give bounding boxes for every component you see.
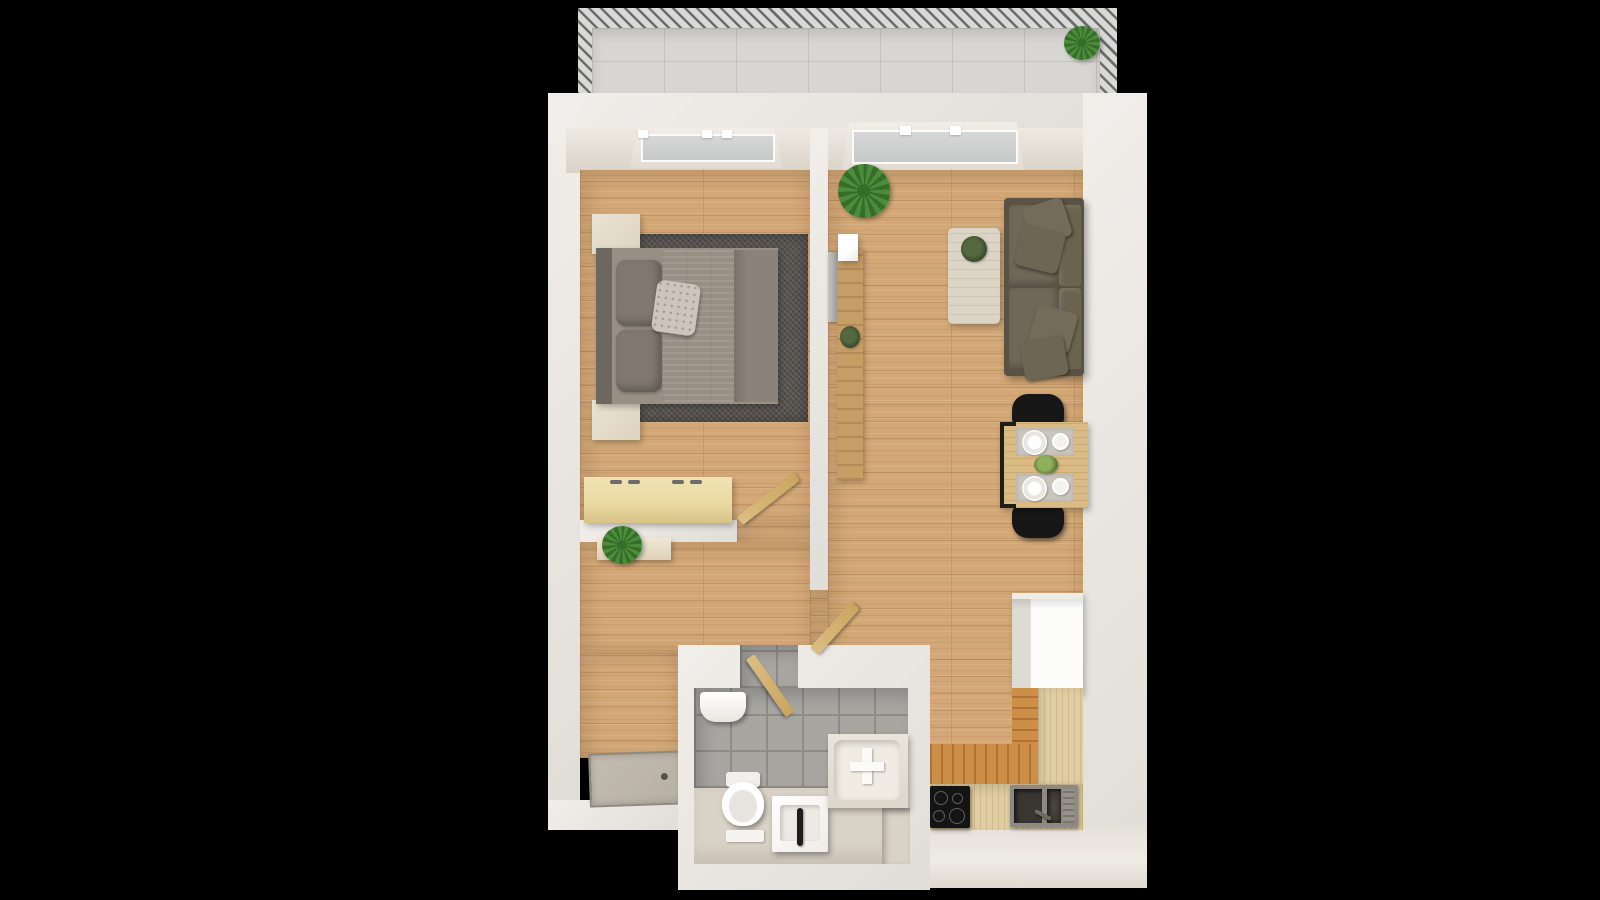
bedroom-window-mullion-3 bbox=[722, 130, 732, 138]
living-window-glass bbox=[852, 130, 1018, 164]
wall-left bbox=[548, 93, 580, 830]
living-plant-icon bbox=[838, 164, 890, 218]
dining-table-frame-top bbox=[1000, 422, 1016, 426]
hall-floor-lower bbox=[580, 650, 678, 758]
bedroom-window-mullion-2 bbox=[702, 130, 712, 138]
wall-right bbox=[1083, 93, 1147, 888]
toilet-bowl bbox=[722, 782, 764, 826]
washbasin-faucet bbox=[797, 808, 803, 846]
bathtub-faucet-horizontal bbox=[850, 762, 884, 771]
sofa-pillow-4 bbox=[1019, 334, 1069, 381]
fridge-cabinet bbox=[1012, 593, 1083, 694]
bathtub bbox=[828, 734, 908, 808]
bed-accent-pillow bbox=[651, 279, 702, 337]
water-heater bbox=[700, 692, 746, 722]
cooktop-burner-1 bbox=[934, 791, 948, 805]
console-plant-icon bbox=[840, 326, 860, 348]
dining-table-frame-bottom bbox=[1000, 504, 1016, 508]
dresser-handle-4 bbox=[690, 480, 702, 484]
cooktop-burner-4 bbox=[949, 808, 965, 824]
tv-panel bbox=[828, 252, 837, 322]
nightstand-bottom bbox=[592, 400, 640, 440]
coffee-table-plant-icon bbox=[961, 236, 987, 262]
bath-mat bbox=[726, 830, 764, 842]
bathroom-niche bbox=[882, 808, 910, 864]
bedroom-window bbox=[630, 128, 782, 168]
bedroom-door-threshold bbox=[737, 520, 810, 544]
bed-headboard bbox=[596, 248, 612, 404]
dining-table bbox=[1000, 422, 1088, 508]
kitchen-floor-strip-bottom bbox=[930, 744, 1038, 784]
dresser bbox=[584, 477, 732, 523]
balcony-floor bbox=[592, 28, 1100, 95]
floorplan-canvas bbox=[0, 0, 1600, 900]
washbasin bbox=[772, 796, 828, 852]
wall-bedroom-living bbox=[810, 128, 828, 590]
sofa bbox=[1004, 198, 1084, 376]
bed-pillow-2 bbox=[616, 330, 662, 392]
plate-top-large bbox=[1022, 430, 1047, 455]
dining-chair-bottom bbox=[1012, 504, 1064, 538]
plate-top-small bbox=[1052, 433, 1069, 450]
sink-drainboard bbox=[1063, 789, 1074, 823]
bedroom-window-mullion-1 bbox=[638, 130, 648, 138]
sink-bowl-left bbox=[1014, 789, 1042, 823]
cooktop-burner-2 bbox=[952, 793, 963, 804]
plate-bottom-small bbox=[1052, 478, 1069, 495]
living-window-mullion-2 bbox=[950, 126, 961, 135]
kitchen-counter-right bbox=[1038, 688, 1083, 786]
dresser-handle-3 bbox=[672, 480, 684, 484]
wall-panel-box bbox=[838, 234, 858, 261]
dresser-handle-1 bbox=[610, 480, 622, 484]
dresser-handle-2 bbox=[628, 480, 640, 484]
bed bbox=[596, 248, 778, 404]
hall-plant-icon bbox=[602, 526, 642, 564]
dining-table-plant-icon bbox=[1034, 455, 1058, 474]
entrance-door-handle bbox=[661, 773, 668, 780]
living-window bbox=[842, 122, 1024, 170]
cooktop bbox=[930, 786, 970, 828]
living-window-mullion-1 bbox=[900, 126, 911, 135]
wall-bottom-right bbox=[906, 828, 1147, 888]
bathroom-block bbox=[678, 645, 930, 890]
tv-console bbox=[837, 248, 863, 480]
balcony-plant-icon bbox=[1064, 26, 1100, 60]
entrance-door bbox=[588, 750, 684, 807]
cooktop-burner-3 bbox=[933, 810, 945, 822]
plate-bottom-large bbox=[1022, 476, 1047, 501]
toilet bbox=[720, 772, 764, 828]
bed-duvet-plain bbox=[734, 250, 778, 402]
kitchen-sink bbox=[1010, 785, 1078, 827]
bedroom-window-glass bbox=[641, 134, 775, 162]
